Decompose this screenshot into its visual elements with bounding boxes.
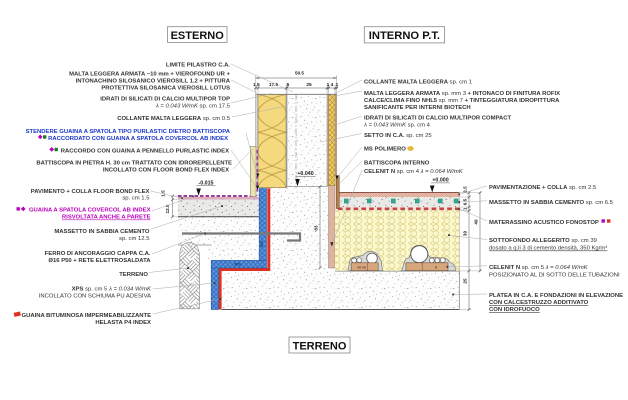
- svg-text:Ø16 P50 + RETE ELETTROSALDATA: Ø16 P50 + RETE ELETTROSALDATA: [48, 258, 151, 264]
- svg-text:-0.015: -0.015: [198, 180, 213, 186]
- svg-text:MASSETTO IN SABBIA CEMENTO sp.: MASSETTO IN SABBIA CEMENTO sp. cm 6.5: [489, 200, 614, 206]
- svg-text:ESTERNO: ESTERNO: [171, 30, 225, 42]
- svg-text:XPS sp. cm 5 λ = 0.034 W/mK: XPS sp. cm 5 λ = 0.034 W/mK: [72, 287, 152, 293]
- svg-text:CELENIT N sp. cm 4 λ = 0.064 W: CELENIT N sp. cm 4 λ = 0.064 W/mK: [364, 169, 464, 175]
- svg-text:1.5: 1.5: [253, 82, 260, 88]
- svg-text:PROTETTIVA SILOSANICA VIEROSIL: PROTETTIVA SILOSANICA VIEROSILL LOTUS: [101, 86, 230, 92]
- svg-text:LIMITE PILASTRO C.A.: LIMITE PILASTRO C.A.: [166, 63, 231, 69]
- svg-text:VS: VS: [362, 266, 366, 270]
- svg-text:sp. cm 1.5: sp. cm 1.5: [122, 196, 150, 202]
- svg-text:CELENIT N sp. cm 5 λ = 0.064 W: CELENIT N sp. cm 5 λ = 0.064 W/mK: [489, 265, 589, 271]
- svg-text:+0.040: +0.040: [297, 171, 313, 177]
- svg-text:SANIFICANTE PER INTERNI BIOTEC: SANIFICANTE PER INTERNI BIOTECH: [364, 105, 471, 111]
- svg-text:XPS: XPS: [260, 241, 264, 247]
- svg-text:POSIZIONATO AL DI SOTTO DELLE: POSIZIONATO AL DI SOTTO DELLE TUBAZIONI: [489, 273, 620, 279]
- svg-text:BATTISCOPA INTERNO: BATTISCOPA INTERNO: [364, 161, 430, 167]
- svg-text:INTERNO P.T.: INTERNO P.T.: [369, 30, 440, 42]
- svg-text:1: 1: [463, 207, 468, 210]
- svg-text:50.5: 50.5: [295, 71, 304, 76]
- svg-text:RACCORDATO CON GUAINA A SPATOL: RACCORDATO CON GUAINA A SPATOLA COVERCOL…: [48, 136, 228, 142]
- svg-text:FERRO DI ANCORAGGIO CAPPA C.A.: FERRO DI ANCORAGGIO CAPPA C.A.: [45, 251, 151, 257]
- svg-text:4: 4: [331, 82, 334, 88]
- svg-text:λ = 0.043 W/mK sp. cm 17.5: λ = 0.043 W/mK sp. cm 17.5: [155, 104, 231, 110]
- svg-text:25: 25: [306, 82, 312, 88]
- svg-text:CALCE/CLIMA FINO NHL5 sp. mm 7: CALCE/CLIMA FINO NHL5 sp. mm 7 + TINTEGG…: [364, 98, 560, 104]
- svg-text:RACCORDO CON GUAINA A PENNELLO: RACCORDO CON GUAINA A PENNELLO PURLASTIC…: [61, 149, 229, 155]
- svg-text:CON CALCESTRUZZO ADDITIVATO: CON CALCESTRUZZO ADDITIVATO: [489, 300, 589, 306]
- svg-text:CON IDROFUOCO: CON IDROFUOCO: [489, 307, 540, 313]
- svg-text:INCOLLATO CON FLOOR BOND FLEX: INCOLLATO CON FLOOR BOND FLEX INDEX: [103, 168, 229, 174]
- svg-text:BATTISCOPA IN PIETRA H. 30 cm: BATTISCOPA IN PIETRA H. 30 cm TRATTATO C…: [36, 161, 232, 167]
- svg-text:XPS: XPS: [234, 263, 240, 267]
- svg-text:IDRATI DI SILICATI DI CALCIO M: IDRATI DI SILICATI DI CALCIO MULTIPOR TO…: [100, 97, 230, 103]
- svg-text:TERRENO: TERRENO: [293, 341, 347, 353]
- svg-text:83: 83: [314, 225, 319, 231]
- svg-text:IDRATI DI SILICATI DI CALCIO M: IDRATI DI SILICATI DI CALCIO MULTIPOR CO…: [364, 116, 512, 122]
- svg-text:INTONACHINO SILOSANICO VIEROSI: INTONACHINO SILOSANICO VIEROSILL 1.2 + P…: [76, 79, 231, 85]
- svg-text:MALTA LEGGERA ARMATA ~10 mm +: MALTA LEGGERA ARMATA ~10 mm + VIEROFOUND…: [69, 72, 230, 78]
- svg-text:1: 1: [336, 82, 339, 88]
- svg-text:GUAINA A SPATOLA COVERCOL AB I: GUAINA A SPATOLA COVERCOL AB INDEX: [29, 208, 151, 214]
- svg-text:+0.000: +0.000: [432, 178, 448, 184]
- svg-text:RISVOLTATA ANCHE A PARETE: RISVOLTATA ANCHE A PARETE: [62, 215, 151, 221]
- svg-text:sp. cm 12.5: sp. cm 12.5: [119, 236, 150, 242]
- svg-text:λ = 0.043 W/mK sp. cm 4: λ = 0.043 W/mK sp. cm 4: [363, 123, 431, 129]
- svg-text:PAVIMENTAZIONE + COLLA sp. cm: PAVIMENTAZIONE + COLLA sp. cm 2.5: [489, 185, 597, 191]
- svg-text:2.5: 2.5: [463, 186, 468, 193]
- svg-text:MASSETTO IN SABBIA CEMENTO: MASSETTO IN SABBIA CEMENTO: [54, 229, 150, 235]
- svg-text:MALTA LEGGERA ARMATA sp. mm 3: MALTA LEGGERA ARMATA sp. mm 3 + INTONACO…: [364, 91, 560, 97]
- svg-text:MATERASSINO ACUSTICO FONOSTOP: MATERASSINO ACUSTICO FONOSTOP: [489, 220, 599, 226]
- svg-text:HELASTA P4 INDEX: HELASTA P4 INDEX: [95, 320, 151, 326]
- svg-text:49: 49: [474, 219, 479, 225]
- svg-text:COLLANTE MALTA LEGGERA sp. cm: COLLANTE MALTA LEGGERA sp. cm 1: [364, 80, 472, 86]
- svg-text:SOTTOFONDO ALLEGERITO sp. cm 3: SOTTOFONDO ALLEGERITO sp. cm 39: [489, 238, 597, 244]
- svg-text:39: 39: [463, 231, 468, 237]
- svg-text:VS: VS: [357, 266, 361, 270]
- svg-text:MS POLIMERO: MS POLIMERO: [364, 147, 406, 153]
- svg-text:TERRENO: TERRENO: [119, 272, 148, 278]
- svg-text:SETTO IN C.A. sp. cm 25: SETTO IN C.A. sp. cm 25: [364, 133, 432, 139]
- svg-text:5: 5: [287, 82, 290, 88]
- svg-text:COLLANTE MALTA LEGGERA sp. cm: COLLANTE MALTA LEGGERA sp. cm 0.5: [117, 116, 231, 122]
- svg-text:PAVIMENTO + COLLA FLOOR BOND F: PAVIMENTO + COLLA FLOOR BOND FLEX: [31, 189, 150, 195]
- svg-text:25: 25: [463, 278, 468, 284]
- svg-text:STENDERE GUAINA A SPATOLA TIPO: STENDERE GUAINA A SPATOLA TIPO PURLASTIC…: [26, 129, 231, 135]
- svg-text:1: 1: [327, 82, 330, 88]
- svg-text:dosato a q.li 3 di cemento den: dosato a q.li 3 di cemento densità, 350 …: [489, 246, 607, 252]
- svg-text:GUAINA BITUMINOSA IMPERMEABILI: GUAINA BITUMINOSA IMPERMEABILIZZANTE: [22, 313, 152, 319]
- svg-text:PLATEA IN C.A. E FONDAZIONI IN: PLATEA IN C.A. E FONDAZIONI IN ELEVAZION…: [489, 293, 623, 299]
- svg-text:INCOLLATO CON SCHIUMA PU ADESI: INCOLLATO CON SCHIUMA PU ADESIVA: [39, 294, 151, 300]
